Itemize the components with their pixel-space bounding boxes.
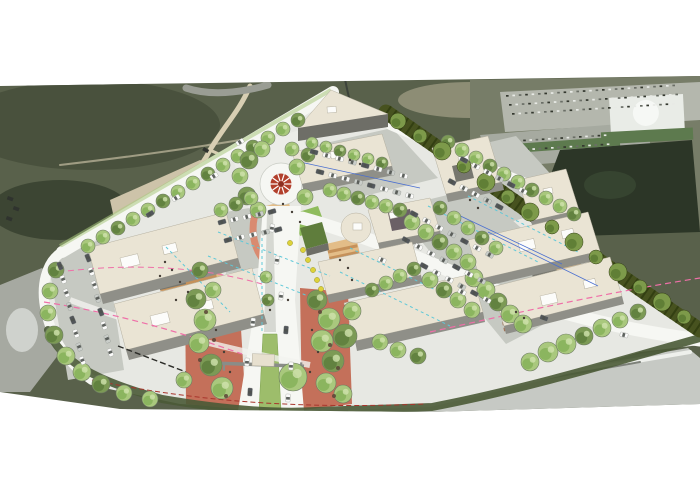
sat-car-dot xyxy=(656,95,659,97)
sat-car-dot xyxy=(522,103,525,105)
tree xyxy=(553,199,567,213)
sat-car-dot xyxy=(650,95,653,97)
sat-car-dot xyxy=(544,111,547,113)
hedge-tree xyxy=(589,250,603,264)
hedge-tree xyxy=(545,220,559,234)
tree xyxy=(45,326,63,344)
sat-car-dot xyxy=(663,94,666,96)
planting-dot xyxy=(212,338,216,342)
person-dot xyxy=(309,371,311,373)
tree xyxy=(432,234,448,250)
tree xyxy=(593,319,611,337)
tree xyxy=(297,189,313,205)
sat-car-dot xyxy=(576,91,579,93)
tree xyxy=(334,145,346,157)
sat-car-dot xyxy=(531,112,534,114)
tree xyxy=(291,113,305,127)
sat-car-dot xyxy=(615,88,618,90)
planting-dot xyxy=(198,358,202,362)
sat-car-dot xyxy=(539,148,542,150)
person-dot xyxy=(179,281,181,283)
sat-car-dot xyxy=(592,99,595,101)
tree xyxy=(111,221,125,235)
yellow-object xyxy=(305,257,310,262)
car xyxy=(247,388,252,396)
tree xyxy=(455,143,469,157)
sat-car-dot xyxy=(647,86,650,88)
tree xyxy=(433,201,447,215)
sat-car-dot xyxy=(529,139,532,141)
sat-car-dot xyxy=(547,102,550,104)
sat-car-dot xyxy=(646,105,649,107)
person-dot xyxy=(477,207,479,209)
sat-car-dot xyxy=(666,103,669,105)
sat-car-dot xyxy=(640,105,643,107)
sat-car-dot xyxy=(523,140,526,142)
tree xyxy=(116,385,132,401)
sat-car-dot xyxy=(618,97,621,99)
tree xyxy=(40,305,56,321)
sat-car-dot xyxy=(599,98,602,100)
tree xyxy=(379,276,393,290)
sat-car-dot xyxy=(653,104,656,106)
tree xyxy=(200,354,222,376)
tree xyxy=(316,373,336,393)
sat-car-dot xyxy=(548,138,551,140)
tree xyxy=(393,269,407,283)
sat-car-dot xyxy=(611,98,614,100)
tree xyxy=(407,262,421,276)
tree xyxy=(393,203,407,217)
sat-car-dot xyxy=(567,137,570,139)
car xyxy=(288,362,293,370)
sat-car-dot xyxy=(595,108,598,110)
sat-car-dot xyxy=(567,100,570,102)
sat-car-dot xyxy=(515,104,518,106)
person-dot xyxy=(223,351,225,353)
photo-strip xyxy=(0,70,700,420)
person-dot xyxy=(291,211,293,213)
planting-dot xyxy=(224,394,228,398)
hedge-tree xyxy=(565,233,583,251)
tree xyxy=(475,231,489,245)
tree xyxy=(289,159,305,175)
tree xyxy=(630,304,646,320)
rendering-canvas xyxy=(0,0,700,484)
person-dot xyxy=(339,259,341,261)
planting-dot xyxy=(328,343,332,347)
sat-car-dot xyxy=(509,104,512,106)
sat-car-dot xyxy=(666,85,669,87)
person-dot xyxy=(515,311,517,313)
sat-car-dot xyxy=(519,94,522,96)
tree xyxy=(262,294,274,306)
sat-car-dot xyxy=(608,89,611,91)
hedge-tree xyxy=(609,263,627,281)
tree xyxy=(538,342,558,362)
tree xyxy=(244,191,258,205)
sat-car-dot xyxy=(621,106,624,108)
person-dot xyxy=(164,261,166,263)
sat-car-dot xyxy=(538,111,541,113)
tree xyxy=(390,342,406,358)
sat-car-dot xyxy=(563,110,566,112)
sat-car-dot xyxy=(557,92,560,94)
tree xyxy=(142,391,158,407)
yellow-object xyxy=(314,277,319,282)
sat-car-dot xyxy=(538,93,541,95)
tree xyxy=(92,375,110,393)
hedge-tree xyxy=(633,280,647,294)
sat-car-dot xyxy=(588,145,591,147)
person-dot xyxy=(287,299,289,301)
tree xyxy=(320,141,332,153)
sat-car-dot xyxy=(570,146,573,148)
sat-car-dot xyxy=(631,96,634,98)
sat-car-dot xyxy=(637,96,640,98)
tree xyxy=(575,327,593,345)
yellow-object xyxy=(300,247,305,252)
hedge-tree xyxy=(501,190,515,204)
hedge-tree xyxy=(413,129,427,143)
sat-car-dot xyxy=(598,135,601,137)
sat-car-dot xyxy=(579,100,582,102)
sat-car-dot xyxy=(594,144,597,146)
person-dot xyxy=(469,199,471,201)
tree xyxy=(469,151,483,165)
person-dot xyxy=(347,267,349,269)
aerial-site-rendering xyxy=(0,0,700,484)
sat-car-dot xyxy=(602,89,605,91)
sat-car-dot xyxy=(541,102,544,104)
sat-car-dot xyxy=(525,94,528,96)
tree xyxy=(379,199,393,213)
yellow-object xyxy=(310,267,315,272)
sat-car-dot xyxy=(601,144,604,146)
tree xyxy=(254,141,270,157)
planting-dot xyxy=(336,366,340,370)
sat-car-dot xyxy=(532,93,535,95)
tree xyxy=(307,290,327,310)
sat-car-dot xyxy=(585,136,588,138)
tree xyxy=(447,211,461,225)
sat-car-dot xyxy=(573,136,576,138)
tree xyxy=(323,183,337,197)
sat-car-dot xyxy=(506,95,509,97)
car xyxy=(244,358,249,366)
sat-tree-mass-light xyxy=(584,171,636,199)
yellow-object xyxy=(318,286,323,291)
car xyxy=(285,394,290,402)
sat-car-dot xyxy=(579,136,582,138)
tree xyxy=(205,282,221,298)
person-dot xyxy=(351,279,353,281)
sat-car-dot xyxy=(535,102,538,104)
tree xyxy=(276,122,290,136)
sat-car-dot xyxy=(545,147,548,149)
sat-car-dot xyxy=(536,139,539,141)
tree xyxy=(334,385,352,403)
sat-car-dot xyxy=(542,138,545,140)
sat-car-dot xyxy=(608,107,611,109)
tree xyxy=(539,191,553,205)
tree xyxy=(214,203,228,217)
hedge-tree xyxy=(390,113,406,129)
hedge-tree xyxy=(677,310,691,324)
sat-car-dot xyxy=(583,90,586,92)
sat-car-dot xyxy=(640,87,643,89)
tree xyxy=(96,230,110,244)
tree xyxy=(460,254,476,270)
median-green xyxy=(259,334,281,410)
sat-car-dot xyxy=(573,100,576,102)
sat-car-dot xyxy=(624,97,627,99)
tree xyxy=(216,158,230,172)
sat-building xyxy=(599,94,693,145)
sat-car-dot xyxy=(564,91,567,93)
person-dot xyxy=(175,299,177,301)
tree xyxy=(306,137,318,149)
sat-car-dot xyxy=(570,109,573,111)
sat-car-dot xyxy=(512,95,515,97)
sat-car-dot xyxy=(554,138,557,140)
hedge-tree xyxy=(653,293,671,311)
tree xyxy=(232,168,248,184)
roundabout-hub xyxy=(278,181,283,186)
sat-car-dot xyxy=(659,104,662,106)
car xyxy=(274,256,280,265)
sat-car-dot xyxy=(570,91,573,93)
sat-car-dot xyxy=(627,106,630,108)
person-dot xyxy=(215,329,217,331)
hedge-tree xyxy=(433,142,451,160)
car xyxy=(283,326,288,334)
planting-dot xyxy=(204,310,208,314)
sat-car-dot xyxy=(557,147,560,149)
person-dot xyxy=(282,203,284,205)
tree xyxy=(176,372,192,388)
person-dot xyxy=(359,163,361,165)
sat-car-dot xyxy=(589,90,592,92)
person-dot xyxy=(171,269,173,271)
sat-car-dot xyxy=(528,103,531,105)
planting-dot xyxy=(318,310,322,314)
sat-car-dot xyxy=(653,86,656,88)
person-dot xyxy=(311,329,313,331)
sat-car-dot xyxy=(621,88,624,90)
sat-car-dot xyxy=(576,109,579,111)
person-dot xyxy=(269,309,271,311)
tree xyxy=(285,142,299,156)
sat-car-dot xyxy=(591,135,594,137)
sat-car-dot xyxy=(634,105,637,107)
tree xyxy=(337,187,351,201)
sat-car-dot xyxy=(518,113,521,115)
sat-car-dot xyxy=(550,111,553,113)
person-dot xyxy=(159,275,161,277)
sat-car-dot xyxy=(586,99,589,101)
sat-car-dot xyxy=(634,87,637,89)
rooftop-unit xyxy=(327,106,336,113)
tree xyxy=(57,347,75,365)
tree xyxy=(186,176,200,190)
tree xyxy=(229,197,243,211)
person-dot xyxy=(187,291,189,293)
tree xyxy=(126,212,140,226)
gateway-post xyxy=(223,364,225,371)
tree xyxy=(333,324,357,348)
sat-car-dot xyxy=(607,143,610,145)
tree xyxy=(42,283,58,299)
tree xyxy=(322,350,344,372)
sat-car-dot xyxy=(614,107,617,109)
tree xyxy=(365,195,379,209)
hedge-tree xyxy=(477,173,495,191)
tree xyxy=(556,334,576,354)
sat-car-dot xyxy=(551,147,554,149)
tree xyxy=(418,224,434,240)
sat-car-dot xyxy=(563,146,566,148)
sat-car-dot xyxy=(643,96,646,98)
sat-car-dot xyxy=(582,109,585,111)
sat-car-dot xyxy=(557,110,560,112)
person-dot xyxy=(229,371,231,373)
tree xyxy=(521,353,539,371)
person-dot xyxy=(523,317,525,319)
tree xyxy=(372,334,388,350)
tree xyxy=(410,348,426,364)
person-dot xyxy=(299,221,301,223)
sat-car-dot xyxy=(628,87,631,89)
tree xyxy=(156,194,170,208)
sat-car-dot xyxy=(560,137,563,139)
sat-car-dot xyxy=(669,94,672,96)
tree xyxy=(260,271,272,283)
tree xyxy=(365,283,379,297)
sat-car-dot xyxy=(675,94,678,96)
person-dot xyxy=(317,351,319,353)
sat-car-dot xyxy=(544,93,547,95)
tree xyxy=(343,302,361,320)
sat-car-dot xyxy=(576,145,579,147)
rooftop-unit xyxy=(353,223,362,230)
car xyxy=(278,292,284,301)
sat-car-dot xyxy=(604,134,607,136)
sat-car-dot xyxy=(672,85,675,87)
car xyxy=(250,318,255,326)
sat-car-dot xyxy=(582,145,585,147)
tree xyxy=(612,312,628,328)
tree xyxy=(525,183,539,197)
tree xyxy=(192,262,208,278)
sat-car-dot xyxy=(551,92,554,94)
sat-car-dot xyxy=(602,107,605,109)
tree xyxy=(73,363,91,381)
tree xyxy=(436,282,452,298)
tree xyxy=(567,207,581,221)
sat-car-dot xyxy=(596,89,599,91)
sat-car-dot xyxy=(532,148,535,150)
tree xyxy=(404,214,420,230)
sat-car-dot xyxy=(525,112,528,114)
sat-car-dot xyxy=(605,98,608,100)
rock-highlight xyxy=(6,308,38,352)
sat-car-dot xyxy=(512,113,515,115)
tree xyxy=(351,191,365,205)
tree xyxy=(81,239,95,253)
planting-dot xyxy=(332,394,336,398)
sat-car-dot xyxy=(660,85,663,87)
sat-car-dot xyxy=(560,101,563,103)
tree xyxy=(311,330,333,352)
tree xyxy=(446,244,462,260)
sat-car-dot xyxy=(589,108,592,110)
yellow-object xyxy=(287,240,292,245)
tree xyxy=(464,302,480,318)
tree xyxy=(211,377,233,399)
sat-car-dot xyxy=(554,101,557,103)
tree xyxy=(189,333,209,353)
hedge-tree xyxy=(521,203,539,221)
gateway-canopy xyxy=(252,354,274,367)
person-dot xyxy=(349,159,351,161)
sat-car-dot xyxy=(672,103,675,105)
tree xyxy=(461,221,475,235)
